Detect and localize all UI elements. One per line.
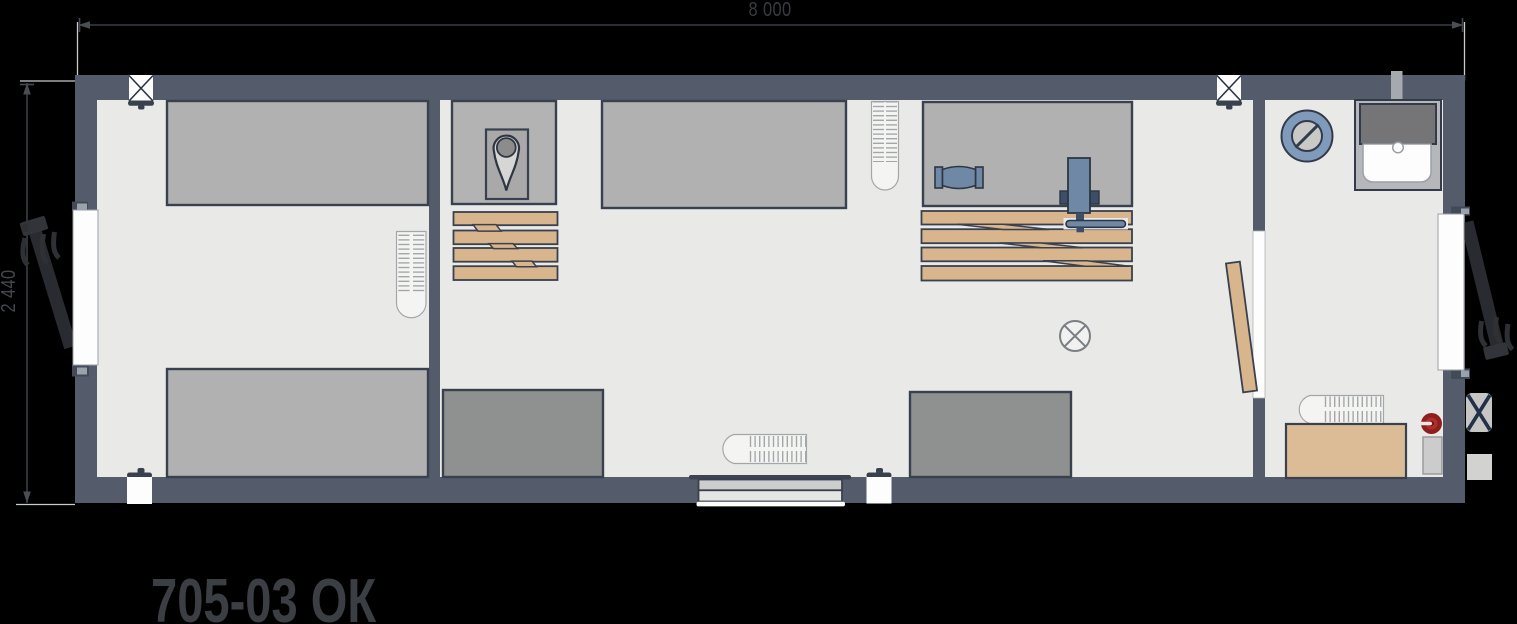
svg-text:8 000: 8 000 xyxy=(748,0,791,20)
svg-text:705-03 ОК: 705-03 ОК xyxy=(151,566,376,624)
svg-text:2 440: 2 440 xyxy=(0,269,19,312)
